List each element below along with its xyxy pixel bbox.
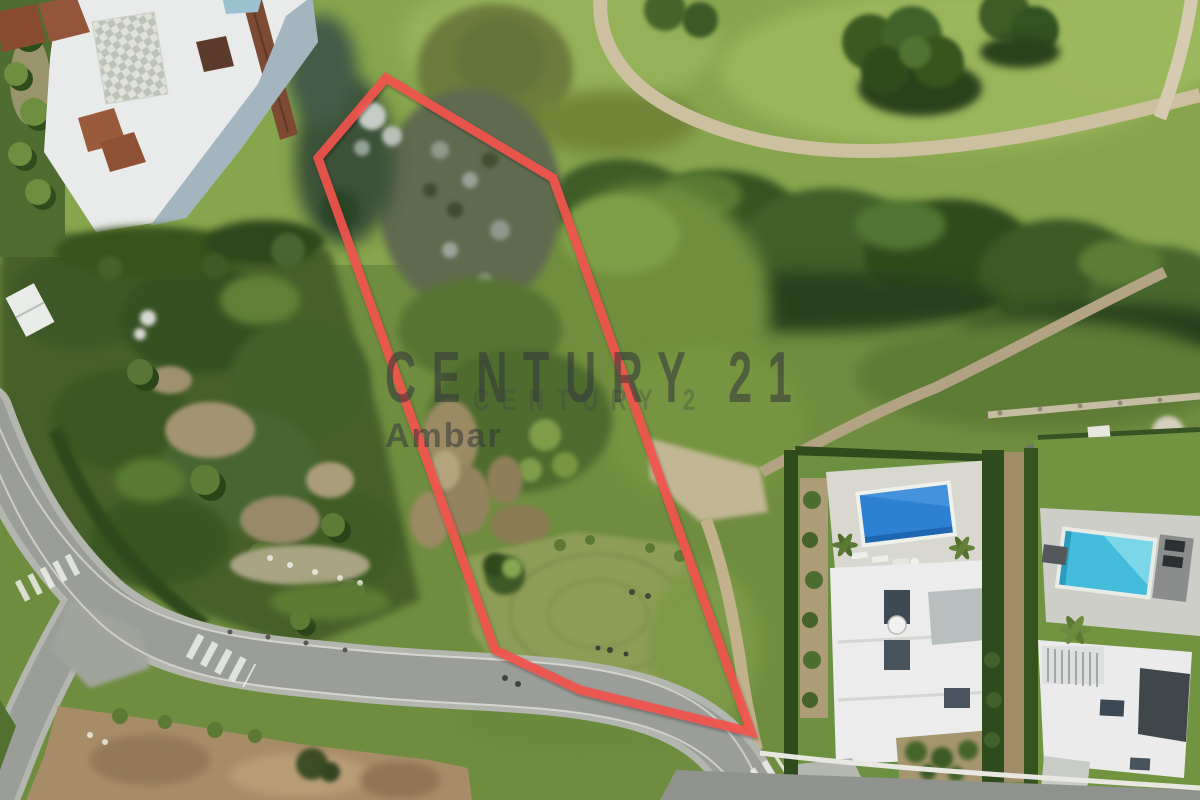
- watermark-agency-text: Ambar: [385, 417, 503, 455]
- aerial-photo: CENTURY 2 CENTURY 21 Ambar: [0, 0, 1200, 800]
- roof-terrace: [92, 12, 168, 104]
- villa-left-hedge: [784, 450, 798, 800]
- watermark-brand-text: CENTURY 21: [385, 337, 807, 418]
- villa-right: [982, 432, 1200, 800]
- rooftop-pool: [222, 0, 262, 14]
- villa-right-pool: [1055, 526, 1158, 599]
- outdoor-kitchen: [1042, 544, 1068, 565]
- divider-dirt-path: [1004, 452, 1024, 782]
- villa-left-pool: [855, 480, 957, 547]
- aerial-photo-canvas: CENTURY 2 CENTURY 21 Ambar: [0, 0, 1200, 800]
- balcony: [1042, 646, 1104, 684]
